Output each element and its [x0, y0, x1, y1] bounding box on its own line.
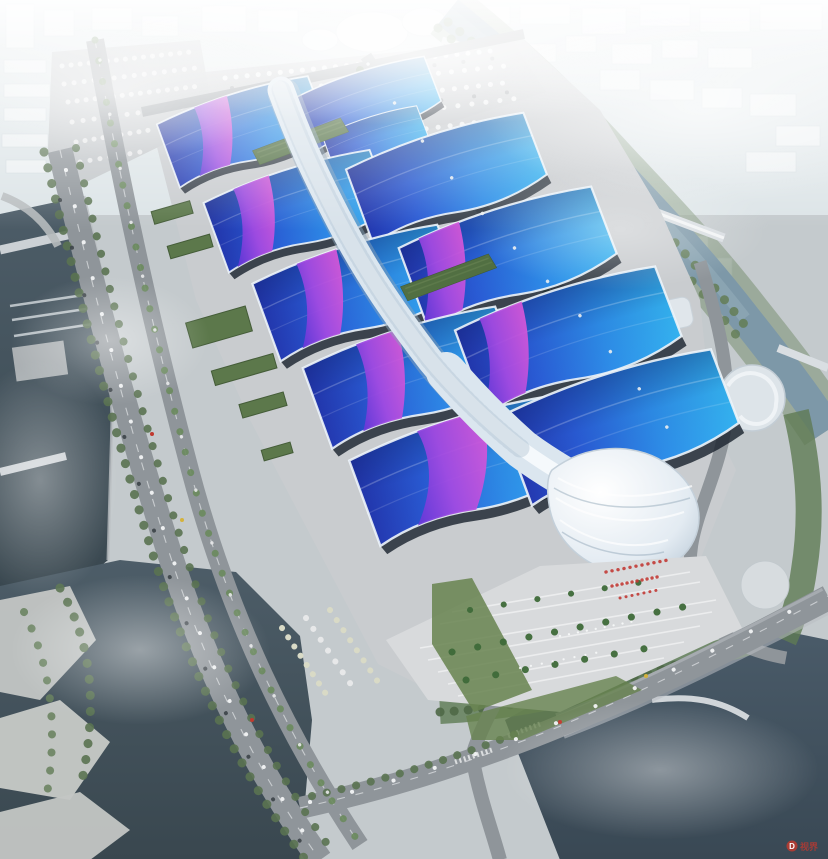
aerial-rendering-exhibition-center: D 视界 [0, 0, 828, 859]
watermark: D 视界 [787, 841, 819, 853]
watermark-logo-letter: D [789, 842, 795, 851]
watermark-text: 视界 [800, 841, 818, 852]
